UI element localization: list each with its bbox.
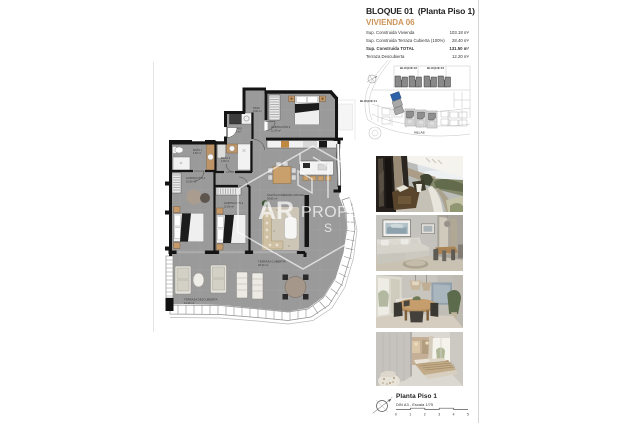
svg-text:S: S [324,221,332,235]
svg-text:11.40 m²: 11.40 m² [271,128,281,132]
svg-text:TERRAZA CUBIERTA: TERRAZA CUBIERTA [258,260,286,264]
svg-text:HABITACIÓN 3: HABITACIÓN 3 [271,124,291,129]
svg-text:12.20 m²: 12.20 m² [184,301,194,305]
svg-text:0: 0 [395,413,397,417]
svg-text:TERRAZA DESCUBIERTA: TERRAZA DESCUBIERTA [184,298,217,302]
svg-text:1: 1 [409,413,411,417]
svg-text:2: 2 [424,413,426,417]
svg-text:AR: AR [258,197,294,225]
svg-text:11.80 m²: 11.80 m² [224,204,234,208]
svg-text:10.60 m²: 10.60 m² [186,179,196,183]
svg-text:28.40 m²: 28.40 m² [258,263,268,267]
svg-text:HABITACIÓN 2: HABITACIÓN 2 [224,200,244,205]
svg-text:PROPE: PROPE [301,204,360,221]
svg-text:4.35 m²: 4.35 m² [221,160,229,163]
svg-text:4.50 m²: 4.50 m² [193,152,201,155]
svg-text:4: 4 [453,413,455,417]
svg-text:3: 3 [438,413,440,417]
svg-text:3.60 m²: 3.60 m² [253,109,262,113]
svg-text:5: 5 [467,413,469,417]
